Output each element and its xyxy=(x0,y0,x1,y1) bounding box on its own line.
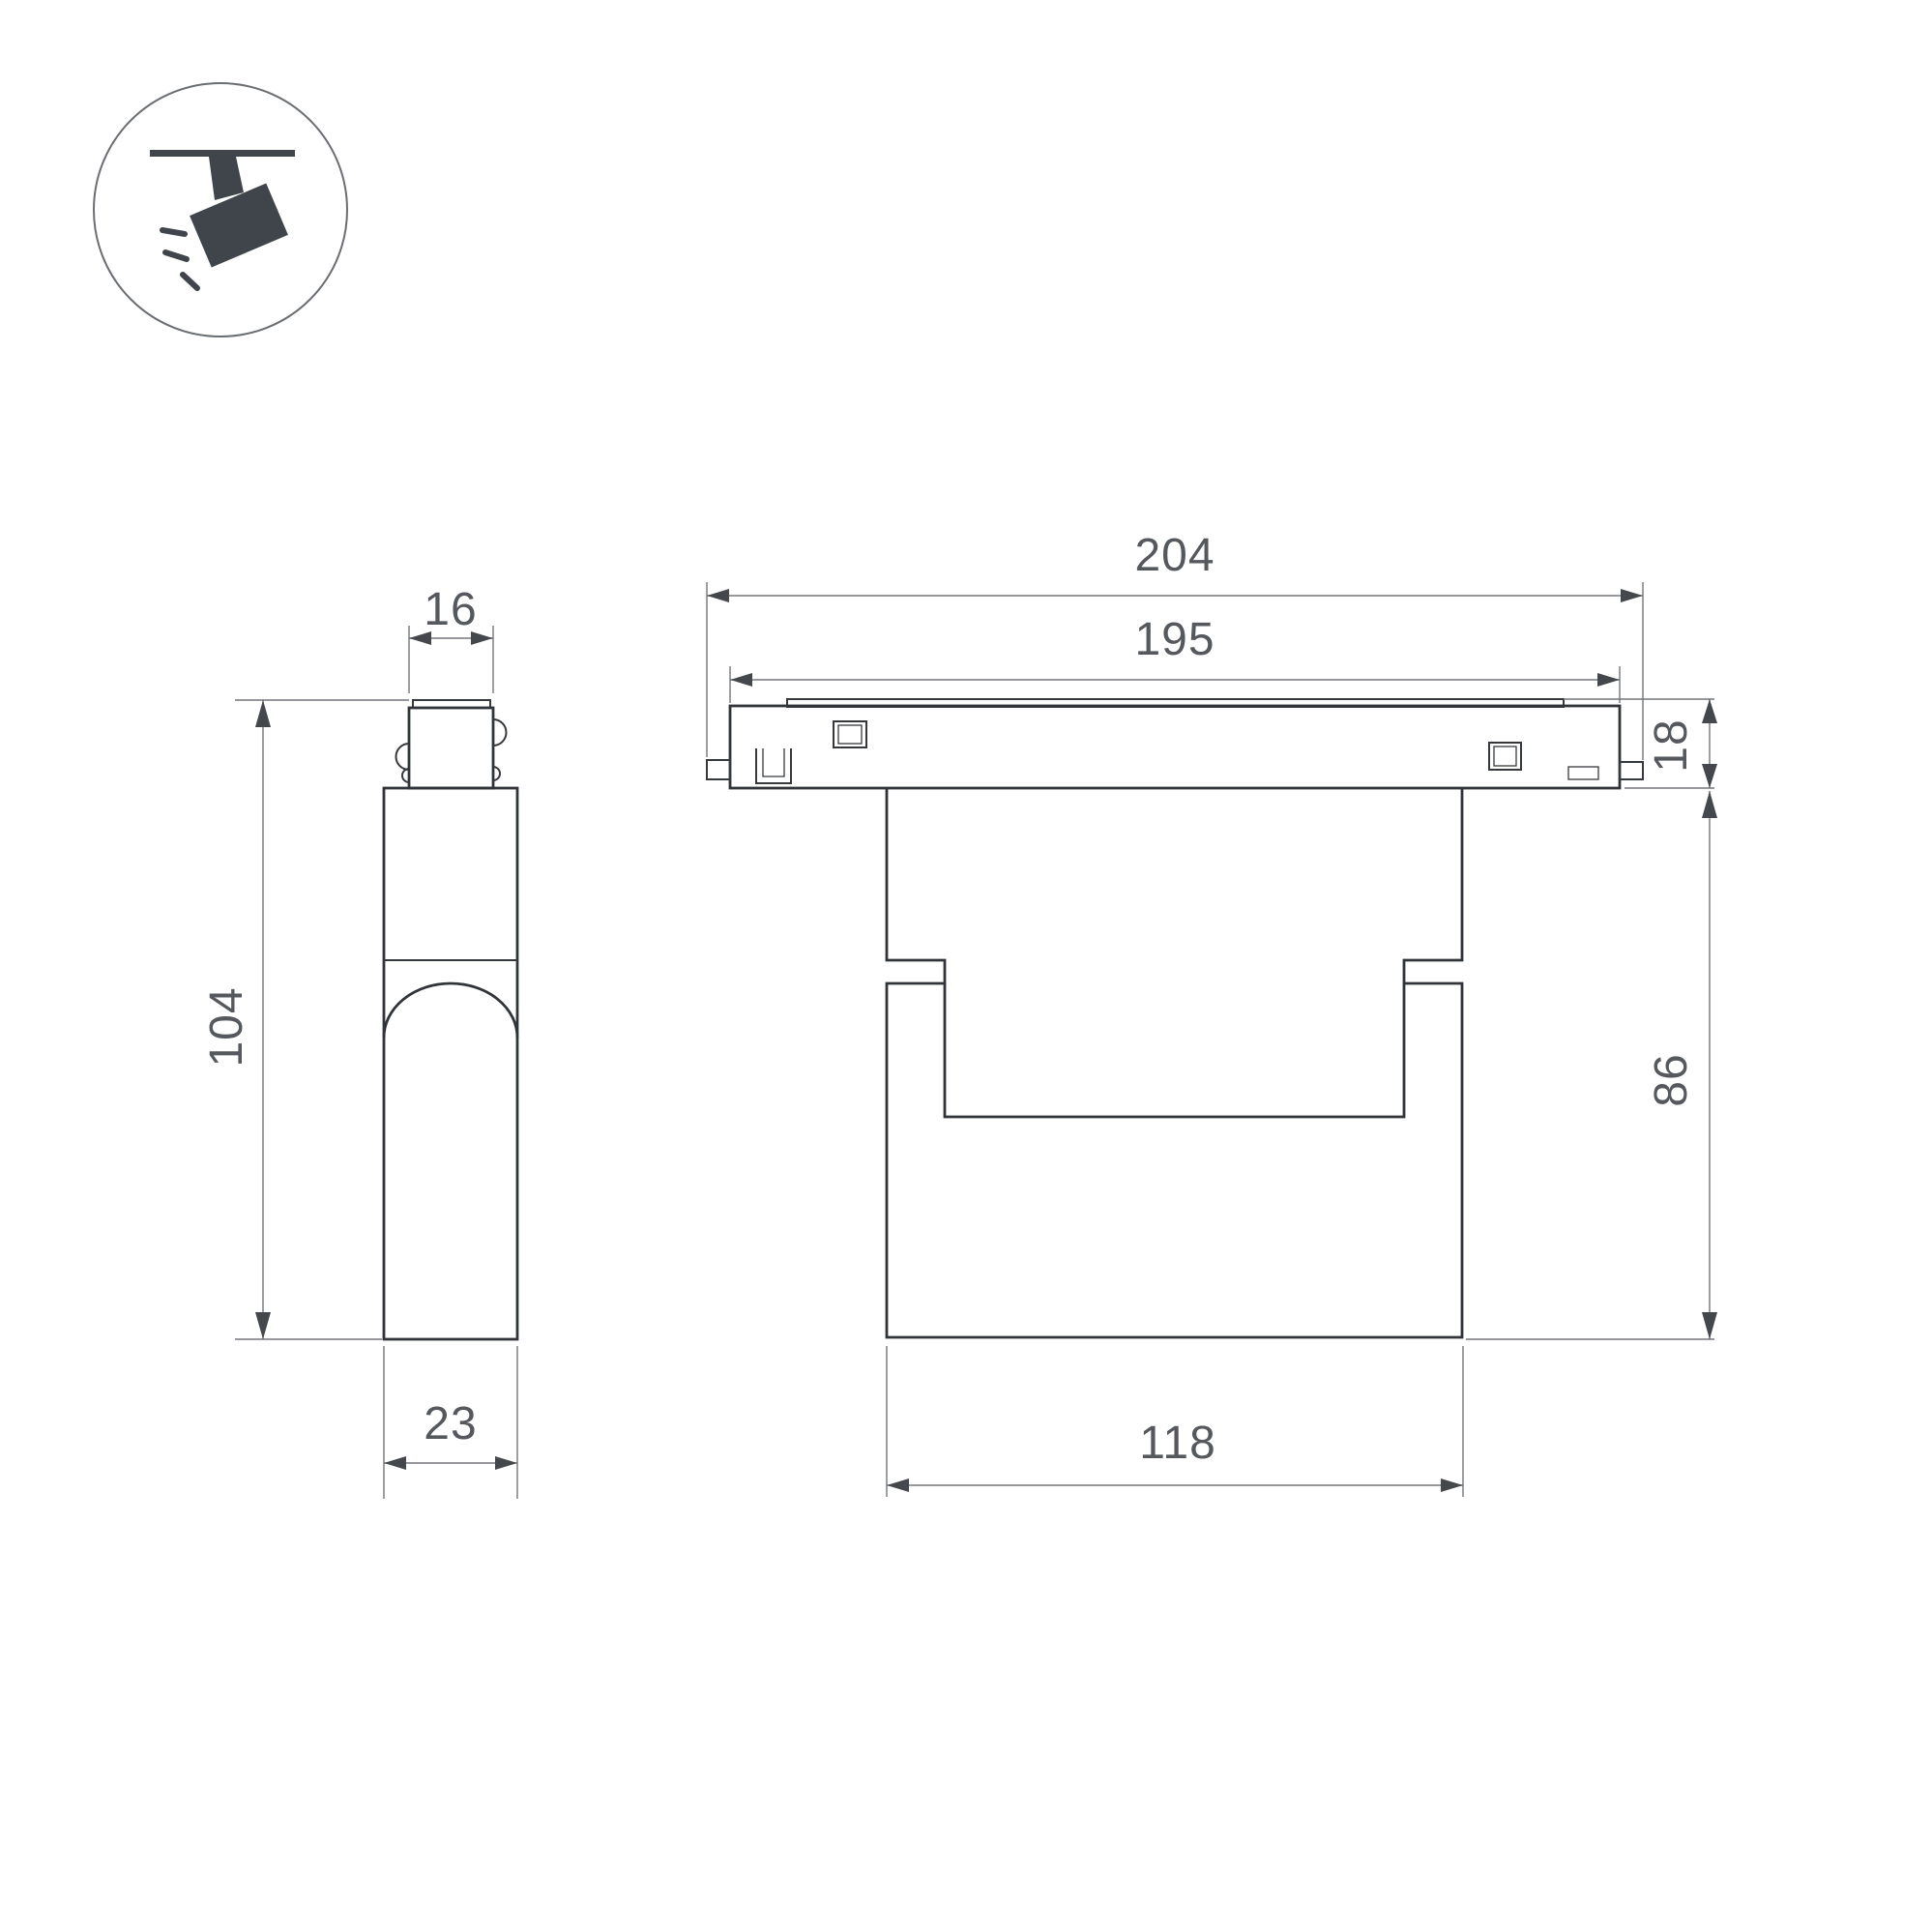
technical-drawing-canvas: 16 104 23 xyxy=(0,0,1932,1932)
side-clip-right-large xyxy=(493,719,507,746)
side-clip-left-large xyxy=(396,744,410,770)
track-spotlight-icon xyxy=(94,83,347,337)
dim-86-text: 86 xyxy=(1646,1053,1697,1106)
dim-118-arrow-left xyxy=(887,1478,909,1492)
dim-23: 23 xyxy=(384,1346,517,1499)
dim-118-text: 118 xyxy=(1139,1418,1216,1469)
dim-104-arrow-bottom xyxy=(255,1312,271,1339)
front-body-outline xyxy=(887,788,1462,1337)
dim-86-arrow-top xyxy=(1702,791,1717,818)
dim-18-text: 18 xyxy=(1646,718,1697,772)
front-track-u-bracket-inner xyxy=(763,748,784,776)
dim-16: 16 xyxy=(409,584,493,693)
front-track-u-bracket-outer xyxy=(756,748,791,783)
dim-86: 86 xyxy=(1466,791,1717,1339)
dim-18: 18 xyxy=(1564,699,1717,788)
dim-118: 118 xyxy=(887,1346,1463,1497)
dim-204-arrow-left xyxy=(707,589,729,602)
dim-195: 195 xyxy=(730,614,1620,703)
dim-104-arrow-top xyxy=(255,700,271,727)
dim-104-text: 104 xyxy=(201,986,252,1067)
dim-86-arrow-bottom xyxy=(1702,1312,1717,1339)
dim-118-arrow-right xyxy=(1441,1478,1463,1492)
dim-204-arrow-right xyxy=(1621,589,1643,602)
dim-18-arrow-bottom xyxy=(1702,764,1717,788)
dim-195-text: 195 xyxy=(1134,614,1215,665)
front-track-left-end-tab xyxy=(707,760,730,779)
dim-204-text: 204 xyxy=(1134,530,1215,581)
dim-195-arrow-right xyxy=(1597,673,1620,687)
front-track-right-square-inner xyxy=(1494,746,1516,766)
dim-195-arrow-left xyxy=(730,673,752,687)
front-lamp-recess xyxy=(945,983,1404,1117)
front-view xyxy=(707,699,1643,1337)
icon-ceiling-bar xyxy=(150,150,295,157)
side-lamp-arch xyxy=(384,983,517,1038)
front-track-slot xyxy=(1568,767,1598,779)
side-connector-body xyxy=(409,708,493,788)
dim-23-arrow-right xyxy=(495,1456,517,1470)
icon-light-ray-1 xyxy=(162,230,185,234)
dim-23-arrow-left xyxy=(384,1456,406,1470)
dimension-drawing-page: 16 104 23 xyxy=(0,0,1932,1932)
front-track-right-end-tab xyxy=(1620,762,1643,779)
front-track-left-square-inner xyxy=(838,725,862,744)
side-body xyxy=(384,788,517,1339)
dim-23-text: 23 xyxy=(424,1398,477,1449)
dim-104: 104 xyxy=(201,700,409,1339)
dim-18-arrow-top xyxy=(1702,699,1717,723)
side-view xyxy=(384,700,517,1339)
dim-16-text: 16 xyxy=(424,584,477,635)
